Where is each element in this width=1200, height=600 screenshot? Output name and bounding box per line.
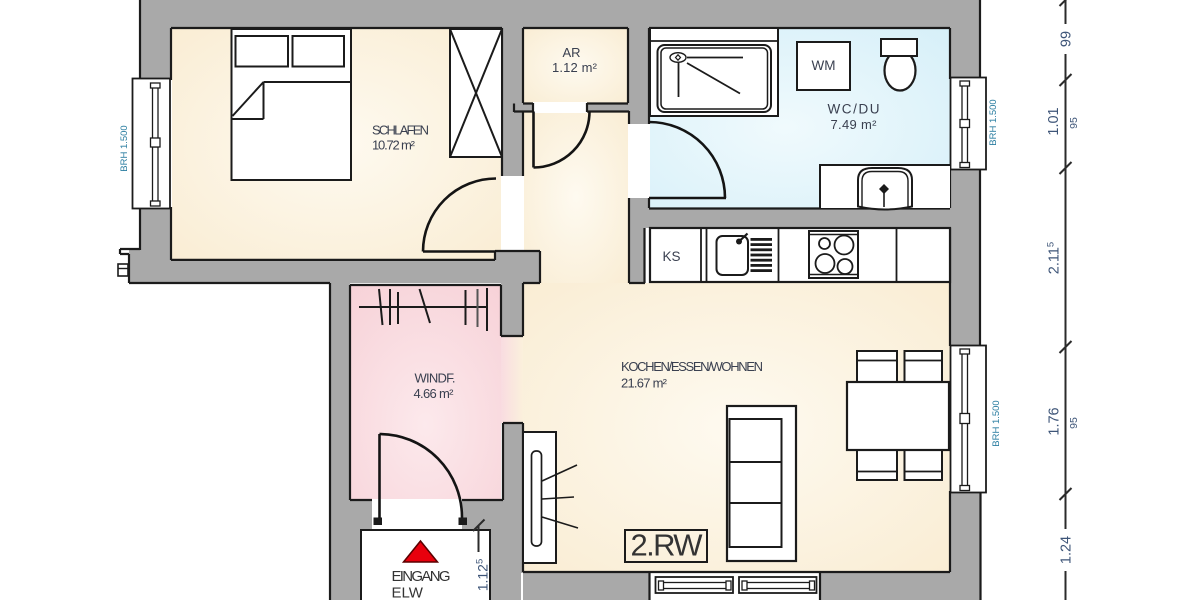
svg-text:99: 99 (1059, 31, 1075, 47)
svg-text:7.49 m²: 7.49 m² (831, 117, 878, 132)
svg-text:EINGANG: EINGANG (392, 568, 451, 585)
svg-text:1.12 m²: 1.12 m² (552, 60, 598, 75)
svg-text:AR: AR (562, 45, 580, 60)
svg-text:KOCHEN/ESSEN/WOHNEN: KOCHEN/ESSEN/WOHNEN (621, 359, 763, 374)
svg-text:KS: KS (662, 249, 680, 264)
svg-text:BRH 1.500: BRH 1.500 (119, 125, 130, 171)
svg-text:SCHLAFEN: SCHLAFEN (372, 123, 429, 138)
svg-text:BRH 1.500: BRH 1.500 (991, 400, 1002, 446)
svg-text:ELW: ELW (392, 585, 424, 600)
svg-text:95: 95 (1068, 417, 1080, 429)
svg-text:BRH 1.500: BRH 1.500 (988, 99, 999, 145)
svg-text:WC/DU: WC/DU (828, 102, 880, 117)
svg-text:95: 95 (1068, 117, 1080, 129)
svg-text:10.72 m²: 10.72 m² (372, 138, 416, 153)
svg-text:WINDF.: WINDF. (415, 371, 456, 386)
svg-text:1.01: 1.01 (1046, 107, 1062, 135)
svg-text:21.67 m²: 21.67 m² (621, 376, 668, 391)
svg-text:1.24: 1.24 (1059, 536, 1075, 564)
svg-text:WM: WM (812, 58, 836, 73)
svg-text:2.115: 2.115 (1046, 242, 1063, 274)
svg-text:1.76: 1.76 (1047, 407, 1063, 435)
svg-text:4.66 m²: 4.66 m² (414, 386, 455, 401)
svg-text:2.RW: 2.RW (631, 528, 704, 563)
